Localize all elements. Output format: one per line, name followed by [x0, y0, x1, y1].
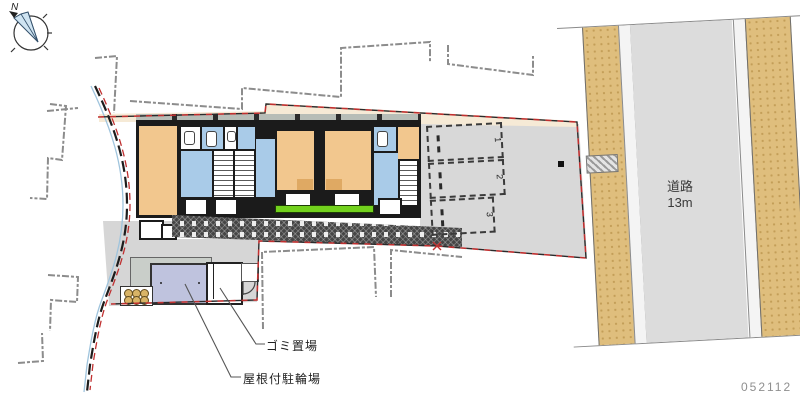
neighbor-outlines [18, 42, 533, 363]
plan-number: 052112 [741, 380, 792, 394]
garbage-label: ゴミ置場 [266, 337, 318, 354]
compass-icon [9, 11, 52, 52]
west-road-curve [84, 86, 130, 392]
site-boundary [98, 104, 586, 304]
site-plan-canvas: 道路 13m 1 2 [0, 0, 800, 403]
linework-overlay [0, 0, 800, 403]
north-label: N [11, 2, 19, 13]
door-swing-icon [243, 282, 255, 295]
bike-shed-label: 屋根付駐輪場 [243, 370, 321, 387]
leader-lines [185, 284, 265, 377]
